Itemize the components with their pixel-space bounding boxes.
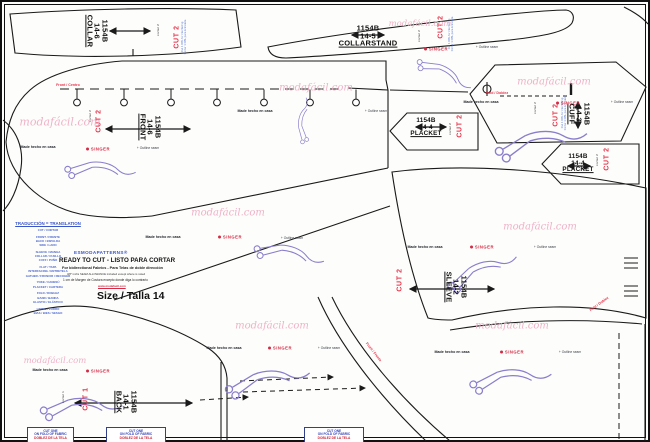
dashed-arrow-2 — [243, 388, 365, 392]
hem-mark: + Outline seam — [137, 146, 159, 150]
made-label: Made hecho en casa — [238, 109, 273, 113]
yoke-diagonal-edge — [114, 206, 390, 300]
made-label: Made hecho en casa — [435, 350, 470, 354]
corner-piece-edge — [624, 7, 648, 24]
singer-logo-icon — [556, 101, 559, 104]
watermark: modafácil.com — [279, 83, 353, 94]
hem-mark: + Outline seam — [365, 109, 387, 113]
singer-brand-mark: SINGER — [268, 346, 292, 351]
center-front-label: Front / Centro — [56, 83, 80, 87]
scissors-icon — [225, 367, 310, 404]
front-bottom-seam — [152, 168, 388, 216]
hem-mark: + Outline seam — [559, 350, 581, 354]
fabric-note: For bidirectional Fabrics - Para Telas d… — [62, 266, 163, 270]
collar-outline — [10, 9, 241, 57]
hem-mark: + Outline seam — [611, 100, 633, 104]
singer-logo-icon — [86, 147, 89, 150]
esmoda-brand: ESMODAPATTERNS® — [74, 250, 128, 255]
watermark: modafácil.com — [517, 77, 591, 88]
cut-label-placket-a: CUT 2 — [457, 114, 464, 137]
hem-mark: + Outline seam — [476, 45, 498, 49]
cortar-note: cortar 2 — [595, 154, 599, 166]
scissors-icon — [413, 49, 470, 104]
cut-on-fold-box: CUT ONE ON FOLD OF FABRIC DOBLEZ DE LA T… — [304, 427, 364, 442]
cortar-note: cortar 2 — [417, 30, 421, 42]
pattern-sheet: 1154B 14-6 COLLAR 1154B 14-5 COLLARSTAND… — [0, 0, 650, 442]
cortar-note: cortar 2 — [533, 102, 537, 114]
back-outline — [4, 306, 227, 441]
singer-logo-icon — [424, 47, 427, 50]
piece-label-placket-b: 1154B 14-4 PLACKET — [562, 154, 593, 174]
cut-label-placket-b: CUT 2 — [604, 147, 611, 170]
cut-label-sleeve: CUT 2 — [397, 268, 404, 291]
singer-brand-mark: SINGER — [86, 147, 110, 152]
scissors-icon — [63, 151, 136, 197]
piece-label-sleeve: 1154B 14-2 SLEEVE — [445, 272, 468, 303]
made-label: Made hecho en casa — [464, 100, 499, 104]
singer-logo-icon — [86, 369, 89, 372]
dashed-arrow-3 — [200, 397, 248, 400]
watermark: modafácil.com — [191, 208, 265, 219]
interfacing-note: Cut 1 DBL for interfacing Cortar 1 DBL p… — [181, 20, 187, 55]
singer-logo-icon — [500, 350, 503, 353]
watermark: modafácil.com — [24, 356, 87, 366]
cut-on-fold-box: CUT ONE ON FOLD OF FABRIC DOBLEZ DE LA T… — [106, 427, 166, 442]
sleeve-notch-marks — [624, 258, 638, 296]
translation-title: TRADUCCIÓN = TRANSLATION — [4, 221, 92, 226]
front-outline-right — [122, 61, 388, 168]
made-label: Made hecho en casa — [33, 368, 68, 372]
hem-mark: + Outline seam — [534, 245, 556, 249]
watermark: modafácil.com — [19, 116, 100, 129]
piece-label-cuff: 1154B 14-3 CUFF — [568, 103, 591, 126]
made-label: Made hecho en casa — [146, 235, 181, 239]
made-label: Made hecho en casa — [207, 346, 242, 350]
hem-mark: + Outline seam — [281, 236, 303, 240]
watermark: modafácil.com — [475, 321, 549, 332]
singer-brand-mark: SINGER — [500, 350, 524, 355]
scissors-icon — [291, 98, 322, 146]
fold-label-cuff: Fold / Doblez — [486, 91, 508, 95]
piece-label-placket-a: 1154B 14-4 PLACKET — [410, 118, 441, 138]
cortar-note: cortar 2 — [156, 24, 160, 36]
singer-logo-icon — [218, 235, 221, 238]
watermark: modafácil.com — [235, 321, 309, 332]
made-label: Made hecho en casa — [408, 245, 443, 249]
size-title: Size / Talla 14 — [97, 290, 165, 302]
made-label: Made hecho en casa — [21, 145, 56, 149]
watermark: modafácil.com — [389, 19, 452, 29]
seam-allowance-es: 1 cm de Margen de Costura excepto donde … — [63, 278, 148, 282]
piece-label-front: 1154B 14-6 FRONT — [139, 114, 162, 141]
cut-label-back: CUT 1 — [83, 387, 90, 410]
band-edge-1 — [318, 297, 426, 441]
singer-brand-mark: SINGER — [218, 235, 242, 240]
cortar-note: cortar 1 — [61, 391, 65, 403]
piece-label-collar: 1154B 14-6 COLLAR — [86, 15, 109, 47]
cortar-note: cortar 2 — [448, 123, 452, 135]
singer-brand-mark: SINGER — [86, 369, 110, 374]
seam-allowance-en: 3/8" inchs SEAM ALLOWANCE included excep… — [67, 272, 145, 276]
yoke-seam-line — [348, 88, 468, 92]
website-url: www.modafacil.com — [98, 284, 126, 288]
cut-on-fold-box: CUT ONE ON FOLD OF FABRIC DOBLEZ DE LA T… — [27, 427, 74, 442]
watermark: modafácil.com — [503, 222, 577, 233]
singer-logo-icon — [470, 245, 473, 248]
scissors-icons — [39, 49, 587, 435]
singer-brand-mark: SINGER — [470, 245, 494, 250]
scissors-icon — [469, 363, 552, 404]
ready-to-cut-title: READY TO CUT - LISTO PARA CORTAR — [59, 257, 175, 264]
hem-mark: + Outline seam — [318, 346, 340, 350]
cut-label-cuff: CUT 2 — [553, 103, 560, 126]
piece-label-back: 1154B 14-1 BACK — [115, 391, 138, 414]
singer-brand-mark: SINGER — [424, 47, 448, 52]
singer-logo-icon — [268, 346, 271, 349]
singer-brand-mark: SINGER — [556, 101, 580, 106]
